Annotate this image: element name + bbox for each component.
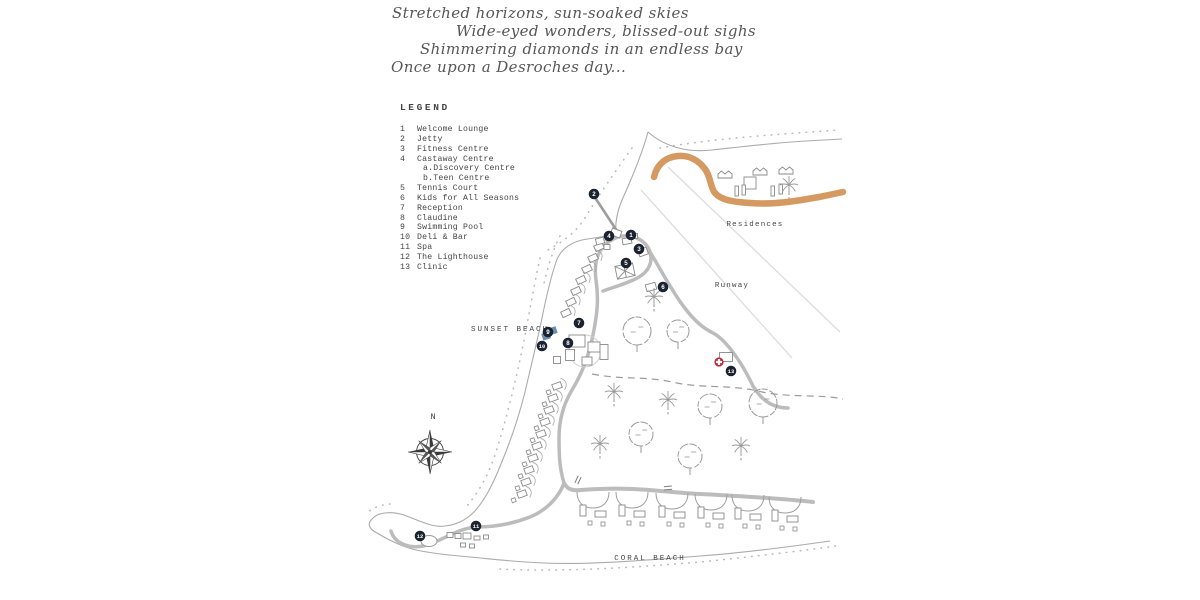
villa	[509, 485, 533, 504]
map-label-residences: Residences	[726, 221, 783, 229]
villa	[528, 425, 552, 444]
building	[470, 544, 475, 548]
map-marker-9: 9	[543, 327, 554, 338]
svg-text:1: 1	[629, 232, 633, 239]
svg-text:2: 2	[592, 191, 596, 198]
building	[600, 345, 608, 360]
map-marker-1: 1	[626, 230, 637, 241]
residence-hut	[779, 167, 793, 174]
residence-building	[771, 186, 775, 196]
villa	[516, 461, 540, 480]
beach-villa-cluster	[656, 493, 688, 527]
beach-villa-cluster	[577, 492, 609, 526]
island-map: SUNSET BEACHResidencesRunwayCORAL BEACHN…	[0, 0, 1200, 600]
svg-text:4: 4	[607, 233, 611, 240]
dashed-trail	[592, 374, 843, 399]
residence-building	[779, 184, 783, 194]
resort-roads	[391, 236, 813, 547]
svg-text:8: 8	[566, 340, 570, 347]
building	[566, 350, 575, 361]
round-tree	[623, 317, 651, 352]
svg-text:7: 7	[577, 320, 581, 327]
map-marker-2: 2	[589, 189, 600, 200]
svg-text:5: 5	[624, 260, 628, 267]
resort-map-page: Stretched horizons, sun-soaked skiesWide…	[0, 0, 1200, 600]
residence-hut	[718, 171, 732, 178]
building	[554, 357, 561, 364]
compass-rose-icon	[408, 430, 452, 474]
map-label-sunset-beach: SUNSET BEACH	[471, 326, 549, 334]
svg-text:12: 12	[417, 534, 423, 540]
villa	[544, 377, 568, 396]
map-marker-10: 10	[537, 341, 548, 352]
villa	[513, 473, 537, 492]
map-marker-13: 13	[726, 366, 737, 377]
map-marker-4: 4	[604, 231, 615, 242]
jetty-pier	[596, 199, 617, 231]
round-tree	[629, 422, 653, 453]
road-gate	[575, 476, 581, 485]
palm-tree	[591, 435, 609, 459]
svg-text:6: 6	[661, 284, 665, 291]
residence-building	[742, 185, 746, 195]
map-marker-7: 7	[574, 318, 585, 329]
svg-text:13: 13	[728, 369, 734, 375]
svg-text:10: 10	[539, 344, 545, 350]
beach-villa-cluster	[695, 494, 727, 528]
residence-building	[735, 186, 739, 196]
building	[645, 282, 656, 291]
building	[582, 357, 592, 365]
compass-north-label: N	[430, 412, 435, 422]
palm-tree	[732, 437, 750, 461]
map-marker-5: 5	[621, 258, 632, 269]
building	[474, 536, 480, 540]
clinic-cross-icon	[714, 357, 723, 366]
building	[595, 237, 604, 245]
round-tree	[678, 444, 702, 475]
map-label-coral-beach: CORAL BEACH	[614, 555, 686, 563]
villa	[532, 413, 556, 432]
round-tree	[667, 320, 689, 349]
building	[455, 534, 461, 539]
road-gate	[664, 486, 672, 490]
svg-text:9: 9	[546, 329, 550, 336]
building	[484, 535, 489, 539]
map-labels: SUNSET BEACHResidencesRunwayCORAL BEACHN	[430, 221, 783, 563]
map-marker-6: 6	[658, 282, 669, 293]
svg-text:3: 3	[637, 246, 641, 253]
building	[588, 342, 600, 352]
beach-villa-cluster	[616, 492, 648, 526]
map-marker-12: 12	[415, 531, 426, 542]
villas	[509, 238, 801, 531]
villa	[520, 449, 544, 468]
round-tree	[698, 394, 722, 425]
building	[461, 543, 466, 547]
map-marker-3: 3	[634, 244, 645, 255]
building	[604, 245, 610, 250]
villa	[536, 401, 560, 420]
palm-tree	[605, 383, 623, 407]
coastline-northeast	[648, 132, 842, 151]
residence-hut	[753, 168, 767, 175]
map-marker-8: 8	[563, 338, 574, 349]
map-marker-11: 11	[471, 521, 482, 532]
palm-tree	[659, 391, 677, 415]
map-label-runway: Runway	[715, 282, 749, 290]
building	[463, 533, 471, 539]
beach-villa-cluster	[732, 495, 764, 529]
svg-text:11: 11	[473, 524, 479, 530]
building	[447, 533, 453, 538]
villa	[524, 437, 548, 456]
villa	[540, 389, 564, 408]
